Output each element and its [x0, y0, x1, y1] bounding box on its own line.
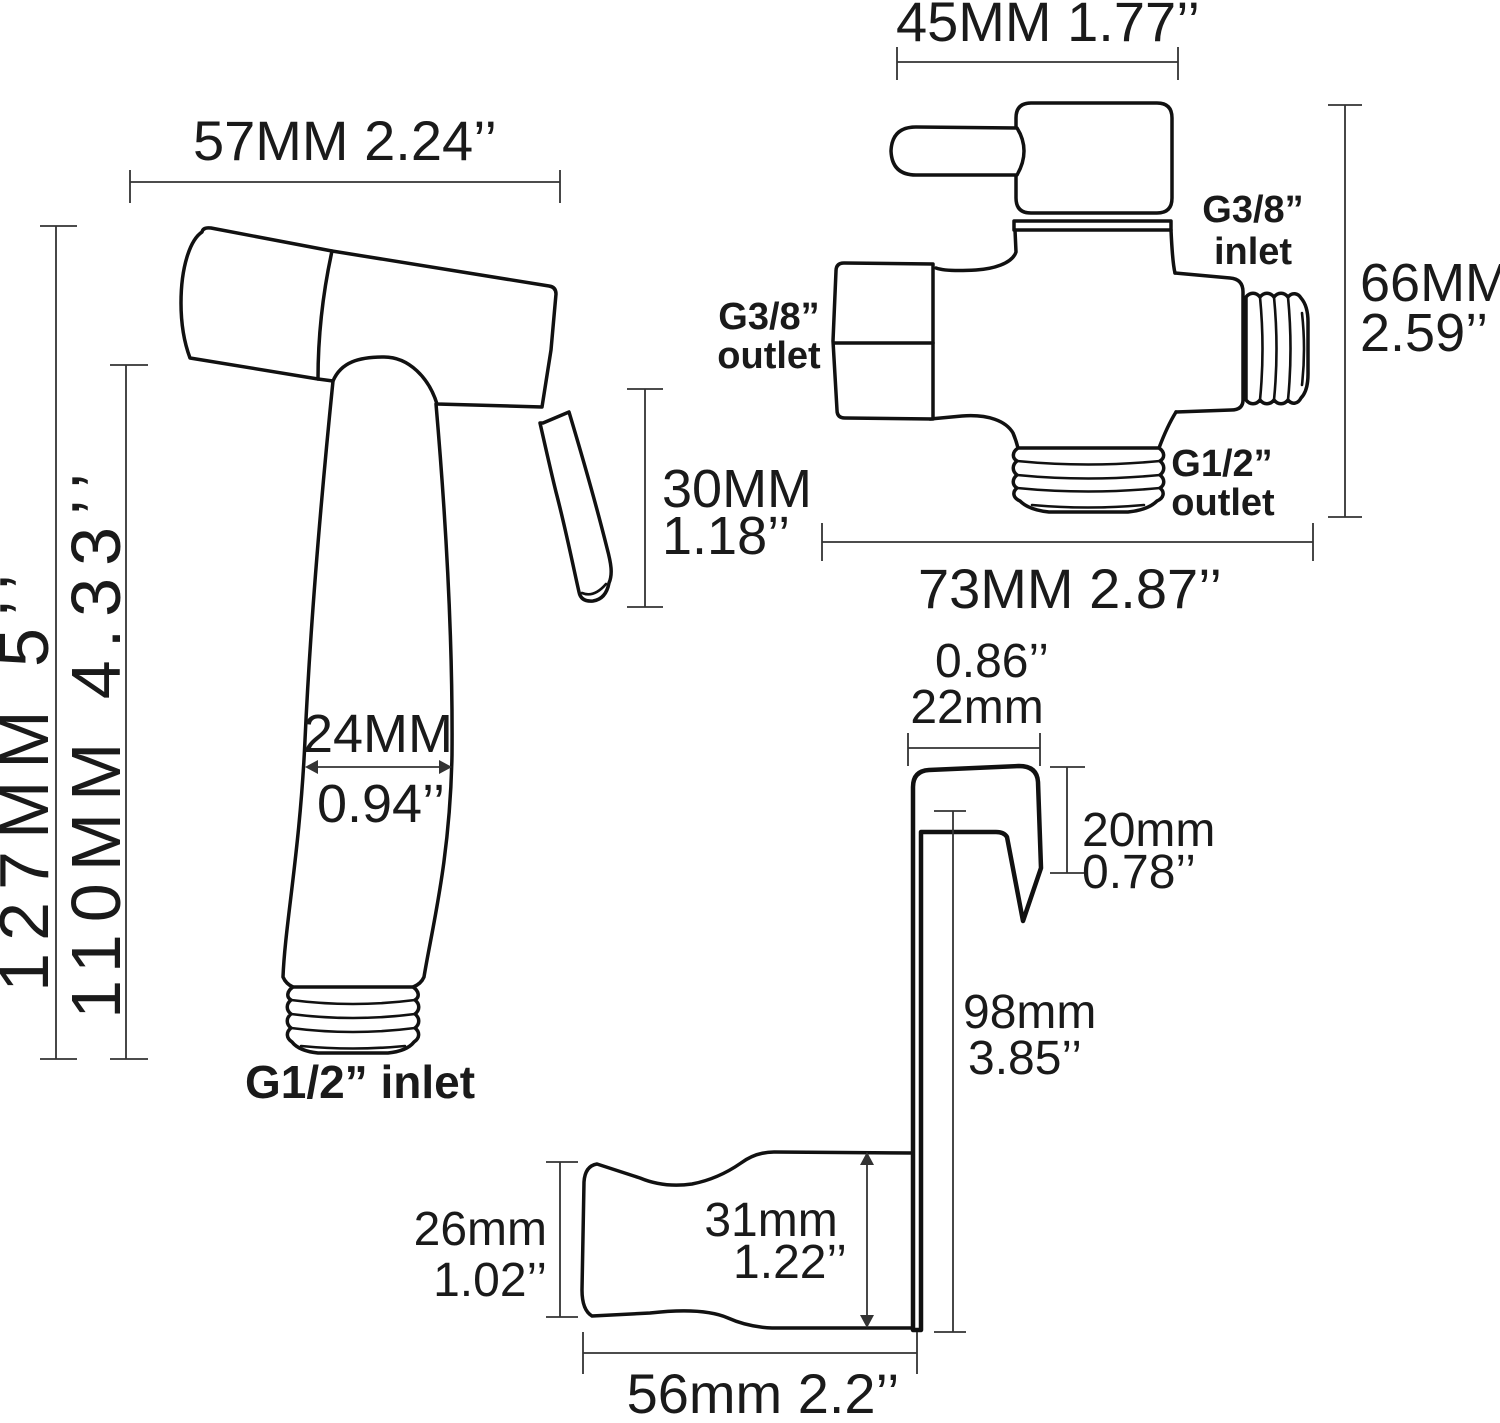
dim-line-66mm — [1328, 105, 1362, 517]
sprayer-handle-right-edge — [413, 404, 452, 987]
valve-body-upper-right — [1171, 230, 1175, 273]
sprayer-inlet-label: G1/2” inlet — [245, 1056, 475, 1108]
sprayer-dimensions: 57MM 2.24’’ 127MM 5’’ 110MM 4.33’’ 30MM … — [0, 109, 812, 1108]
valve-body-right-boss — [1175, 273, 1243, 412]
valve-body-lower-left — [930, 416, 1018, 448]
valve-nut — [833, 263, 933, 419]
dim-label-26mm-metric: 26mm — [414, 1203, 547, 1256]
dim-label-66mm-inch: 2.59’’ — [1360, 303, 1488, 363]
dim-label-24mm-metric: 24MM — [303, 704, 453, 764]
dim-label-57mm: 57MM 2.24’’ — [193, 109, 497, 172]
dim-label-26mm-inch: 1.02’’ — [433, 1254, 547, 1307]
sprayer-handle-left-edge — [283, 381, 333, 987]
dim-line-98mm — [934, 811, 966, 1332]
dim-label-56mm: 56mm 2.2’’ — [627, 1362, 900, 1423]
dim-line-26mm — [546, 1162, 578, 1317]
dim-label-45mm: 45MM 1.77’’ — [896, 0, 1200, 53]
sprayer-drawing — [181, 228, 611, 1053]
valve-inlet-right-label-1: G3/8” — [1202, 189, 1303, 231]
dim-label-hook-metric: 22mm — [910, 681, 1043, 734]
dim-label-24mm-inch: 0.94’’ — [317, 774, 445, 834]
valve-outlet-bottom-label-1: G1/2” — [1171, 443, 1272, 485]
dim-label-110mm: 110MM 4.33’’ — [57, 461, 135, 1019]
sprayer-inlet-threads — [287, 987, 419, 1053]
dim-line-73mm — [822, 523, 1313, 561]
dim-line-20mm — [1050, 767, 1085, 873]
dim-label-20mm-inch: 0.78’’ — [1082, 846, 1196, 899]
dim-label-31mm-inch: 1.22’’ — [733, 1236, 847, 1289]
dim-label-127mm: 127MM 5’’ — [0, 562, 63, 992]
valve-body-upper-left — [936, 230, 1016, 271]
dim-line-57mm — [130, 170, 560, 203]
valve-flange — [1014, 221, 1171, 230]
valve-lever — [891, 127, 1024, 175]
sprayer-trigger — [540, 412, 611, 601]
valve-inlet-right-label-2: inlet — [1214, 231, 1292, 273]
valve-cylinder — [1016, 103, 1172, 213]
valve-outlet-left-label-1: G3/8” — [718, 296, 819, 338]
valve-bottom-threads — [1013, 448, 1164, 512]
dim-label-73mm: 73MM 2.87’’ — [918, 557, 1222, 620]
dim-label-98mm-inch: 3.85’’ — [968, 1032, 1082, 1085]
dim-label-30mm-inch: 1.18’’ — [662, 506, 790, 566]
sprayer-head — [181, 228, 556, 407]
valve-outlet-left-label-2: outlet — [717, 335, 821, 377]
valve-outlet-bottom-label-2: outlet — [1171, 482, 1275, 524]
diagram-canvas: 57MM 2.24’’ 127MM 5’’ 110MM 4.33’’ 30MM … — [0, 0, 1500, 1423]
dim-line-22mm — [908, 733, 1040, 766]
dimension-diagram-svg: 57MM 2.24’’ 127MM 5’’ 110MM 4.33’’ 30MM … — [0, 0, 1500, 1423]
dim-line-30mm — [627, 389, 663, 607]
